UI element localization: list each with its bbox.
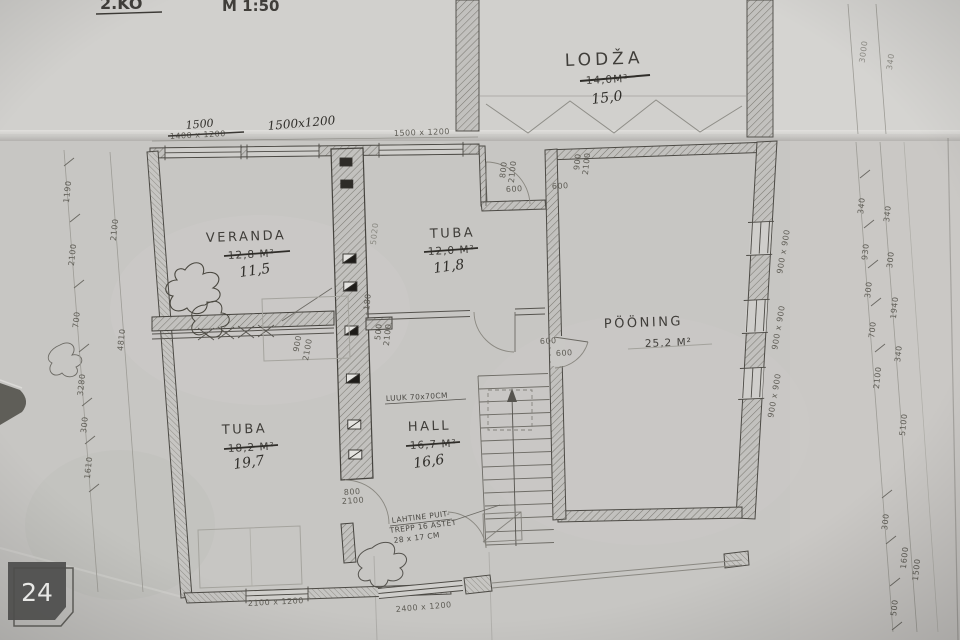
badge-number: 24 [21,578,53,607]
blueprint-photo: 2.KO M 1:50 LODŽA 14,0M² 15,0 3000 340 [0,0,960,640]
floor-plan-drawing: 2.KO M 1:50 LODŽA 14,0M² 15,0 3000 340 [0,0,960,640]
photo-vignette [0,0,960,640]
